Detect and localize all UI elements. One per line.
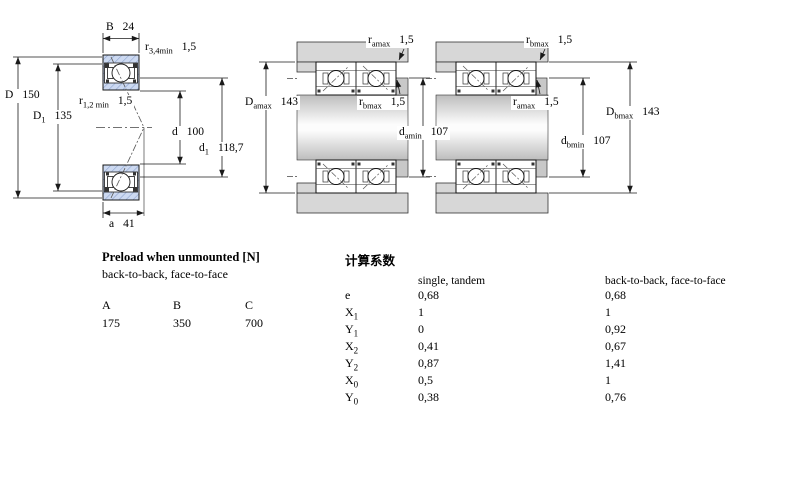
dim-label-D-bmax: Dbmax143	[604, 106, 661, 120]
preload-subtitle: back-to-back, face-to-face	[102, 267, 332, 282]
dim-label-D-amax: Damax143	[243, 96, 300, 110]
preload-table: Preload when unmounted [N] back-to-back,…	[102, 250, 332, 331]
dim-label-r-bmax-mid: rbmax1,5	[357, 96, 407, 110]
preload-header-c: C	[245, 298, 305, 313]
dim-label-d-bmin: dbmin107	[559, 135, 612, 149]
factor-row-X2: X2 0,41 0,67	[345, 338, 790, 355]
dim-Damax-lines	[259, 62, 295, 193]
dim-label-r-bmax-top: rbmax1,5	[524, 34, 574, 48]
dim-Dbmax-lines	[549, 62, 637, 193]
factor-row-X0: X0 0,5 1	[345, 372, 790, 389]
factor-row-X1: X1 1 1	[345, 304, 790, 321]
dim-dbmin-lines	[549, 78, 590, 177]
bearing-datasheet: B24 r3,4min1,5 D150 D1135 r1,2 min1,5 d1…	[0, 0, 800, 500]
dim-label-d-amin: damin107	[397, 126, 450, 140]
factor-row-Y0: Y0 0,38 0,76	[345, 389, 790, 406]
dim-label-r-amax-mid: ramax1,5	[511, 96, 561, 110]
dim-a-lines	[103, 202, 144, 218]
preload-header-a: A	[102, 298, 173, 313]
dim-label-r34: r3,4min1,5	[143, 41, 198, 55]
dim-label-B: B24	[104, 21, 136, 35]
factor-row-Y1: Y1 0 0,92	[345, 321, 790, 338]
dim-label-r-amax-top: ramax1,5	[366, 34, 416, 48]
dim-label-r12: r1,2 min1,5	[77, 95, 134, 109]
factor-row-e: e 0,68 0,68	[345, 287, 790, 304]
dim-label-D1: D1135	[31, 110, 74, 124]
factors-title: 计算系数	[345, 250, 790, 269]
dim-label-a: a41	[107, 218, 137, 232]
preload-value-c: 700	[245, 316, 305, 331]
calculation-factors-table: 计算系数 single, tandem back-to-back, face-t…	[345, 250, 790, 406]
dim-D-lines	[13, 57, 102, 198]
preload-value-b: 350	[173, 316, 245, 331]
preload-header-b: B	[173, 298, 245, 313]
preload-title: Preload when unmounted [N]	[102, 250, 332, 265]
preload-value-a: 175	[102, 316, 173, 331]
dim-label-d1: d1118,7	[197, 142, 245, 156]
dim-label-D: D150	[3, 89, 42, 103]
dim-B-lines	[103, 33, 139, 53]
factor-row-Y2: Y2 0,87 1,41	[345, 355, 790, 372]
dim-D1-lines	[53, 64, 102, 191]
factors-col1-header: single, tandem	[418, 275, 605, 287]
face-to-face-arrangement-view	[426, 42, 637, 213]
factors-col2-header: back-to-back, face-to-face	[605, 275, 785, 287]
dim-label-d: d100	[170, 126, 206, 140]
